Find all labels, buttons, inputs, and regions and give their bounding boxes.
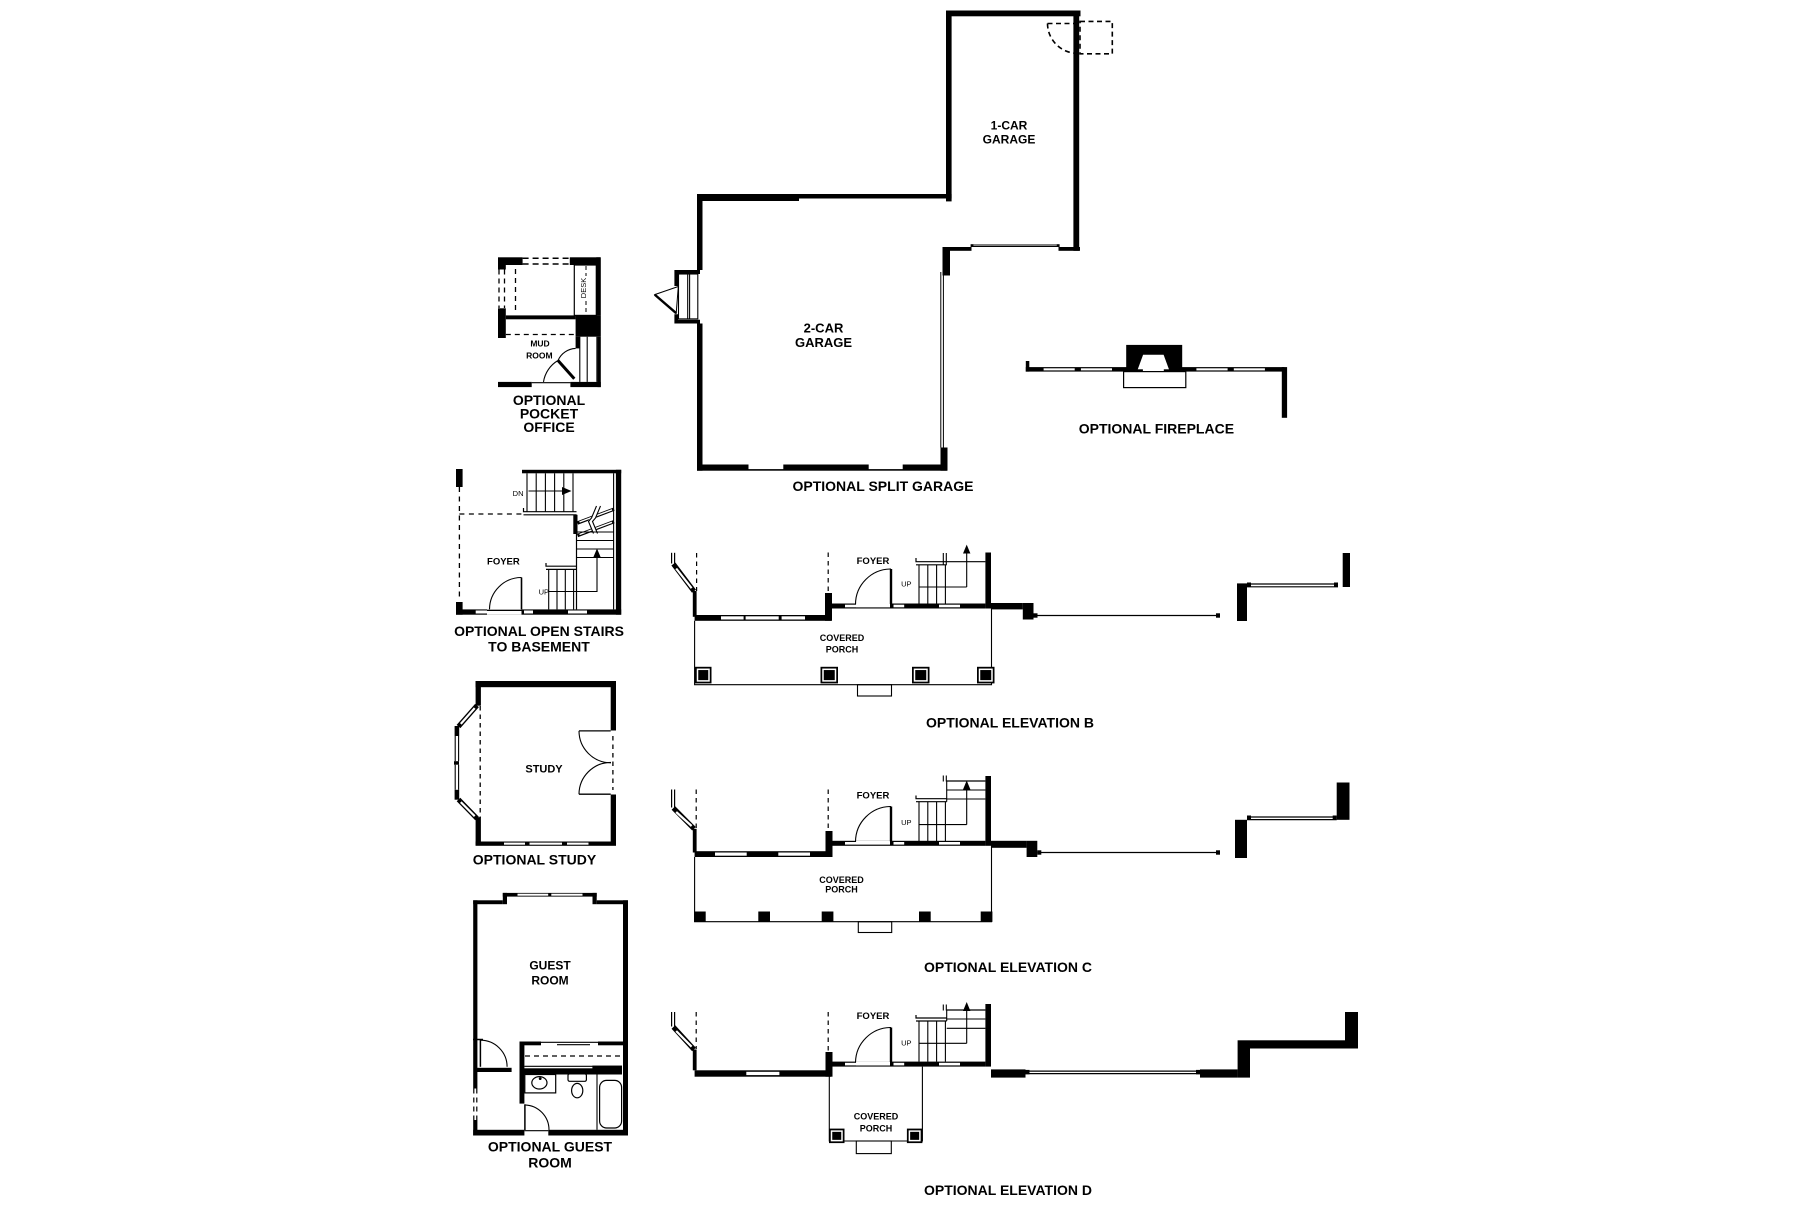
- svg-text:ROOM: ROOM: [531, 974, 568, 988]
- svg-text:STUDY: STUDY: [525, 764, 563, 776]
- svg-text:PORCH: PORCH: [825, 885, 858, 895]
- svg-text:OFFICE: OFFICE: [523, 419, 574, 435]
- svg-text:OPTIONAL ELEVATION D: OPTIONAL ELEVATION D: [924, 1182, 1092, 1198]
- svg-text:COVERED: COVERED: [820, 633, 865, 643]
- svg-text:UP: UP: [901, 580, 911, 589]
- svg-text:GARAGE: GARAGE: [983, 133, 1036, 147]
- svg-text:UP: UP: [901, 1039, 911, 1048]
- svg-text:OPTIONAL GUEST: OPTIONAL GUEST: [488, 1139, 613, 1155]
- svg-text:DESK: DESK: [579, 278, 588, 298]
- svg-text:ROOM: ROOM: [526, 351, 552, 361]
- svg-text:GUEST: GUEST: [529, 959, 571, 973]
- svg-text:FOYER: FOYER: [857, 1011, 890, 1022]
- svg-text:ROOM: ROOM: [528, 1155, 572, 1171]
- svg-text:COVERED: COVERED: [819, 875, 864, 885]
- svg-text:COVERED: COVERED: [854, 1112, 899, 1122]
- svg-text:FOYER: FOYER: [857, 556, 890, 567]
- svg-text:TO BASEMENT: TO BASEMENT: [488, 639, 590, 655]
- svg-text:OPTIONAL OPEN STAIRS: OPTIONAL OPEN STAIRS: [454, 623, 624, 639]
- svg-text:GARAGE: GARAGE: [795, 335, 852, 350]
- svg-text:FOYER: FOYER: [857, 790, 890, 801]
- svg-text:DN: DN: [513, 489, 524, 498]
- svg-text:OPTIONAL ELEVATION C: OPTIONAL ELEVATION C: [924, 959, 1092, 975]
- svg-text:UP: UP: [539, 588, 549, 597]
- svg-text:OPTIONAL FIREPLACE: OPTIONAL FIREPLACE: [1079, 421, 1234, 437]
- svg-text:MUD: MUD: [530, 339, 549, 349]
- svg-text:OPTIONAL SPLIT GARAGE: OPTIONAL SPLIT GARAGE: [793, 478, 974, 494]
- svg-text:2-CAR: 2-CAR: [804, 321, 844, 336]
- svg-text:1-CAR: 1-CAR: [991, 119, 1028, 133]
- svg-text:UP: UP: [901, 818, 911, 827]
- svg-text:PORCH: PORCH: [826, 645, 859, 655]
- svg-text:PORCH: PORCH: [860, 1123, 893, 1133]
- svg-text:OPTIONAL ELEVATION B: OPTIONAL ELEVATION B: [926, 715, 1094, 731]
- svg-text:FOYER: FOYER: [487, 557, 520, 568]
- svg-text:OPTIONAL STUDY: OPTIONAL STUDY: [473, 852, 597, 868]
